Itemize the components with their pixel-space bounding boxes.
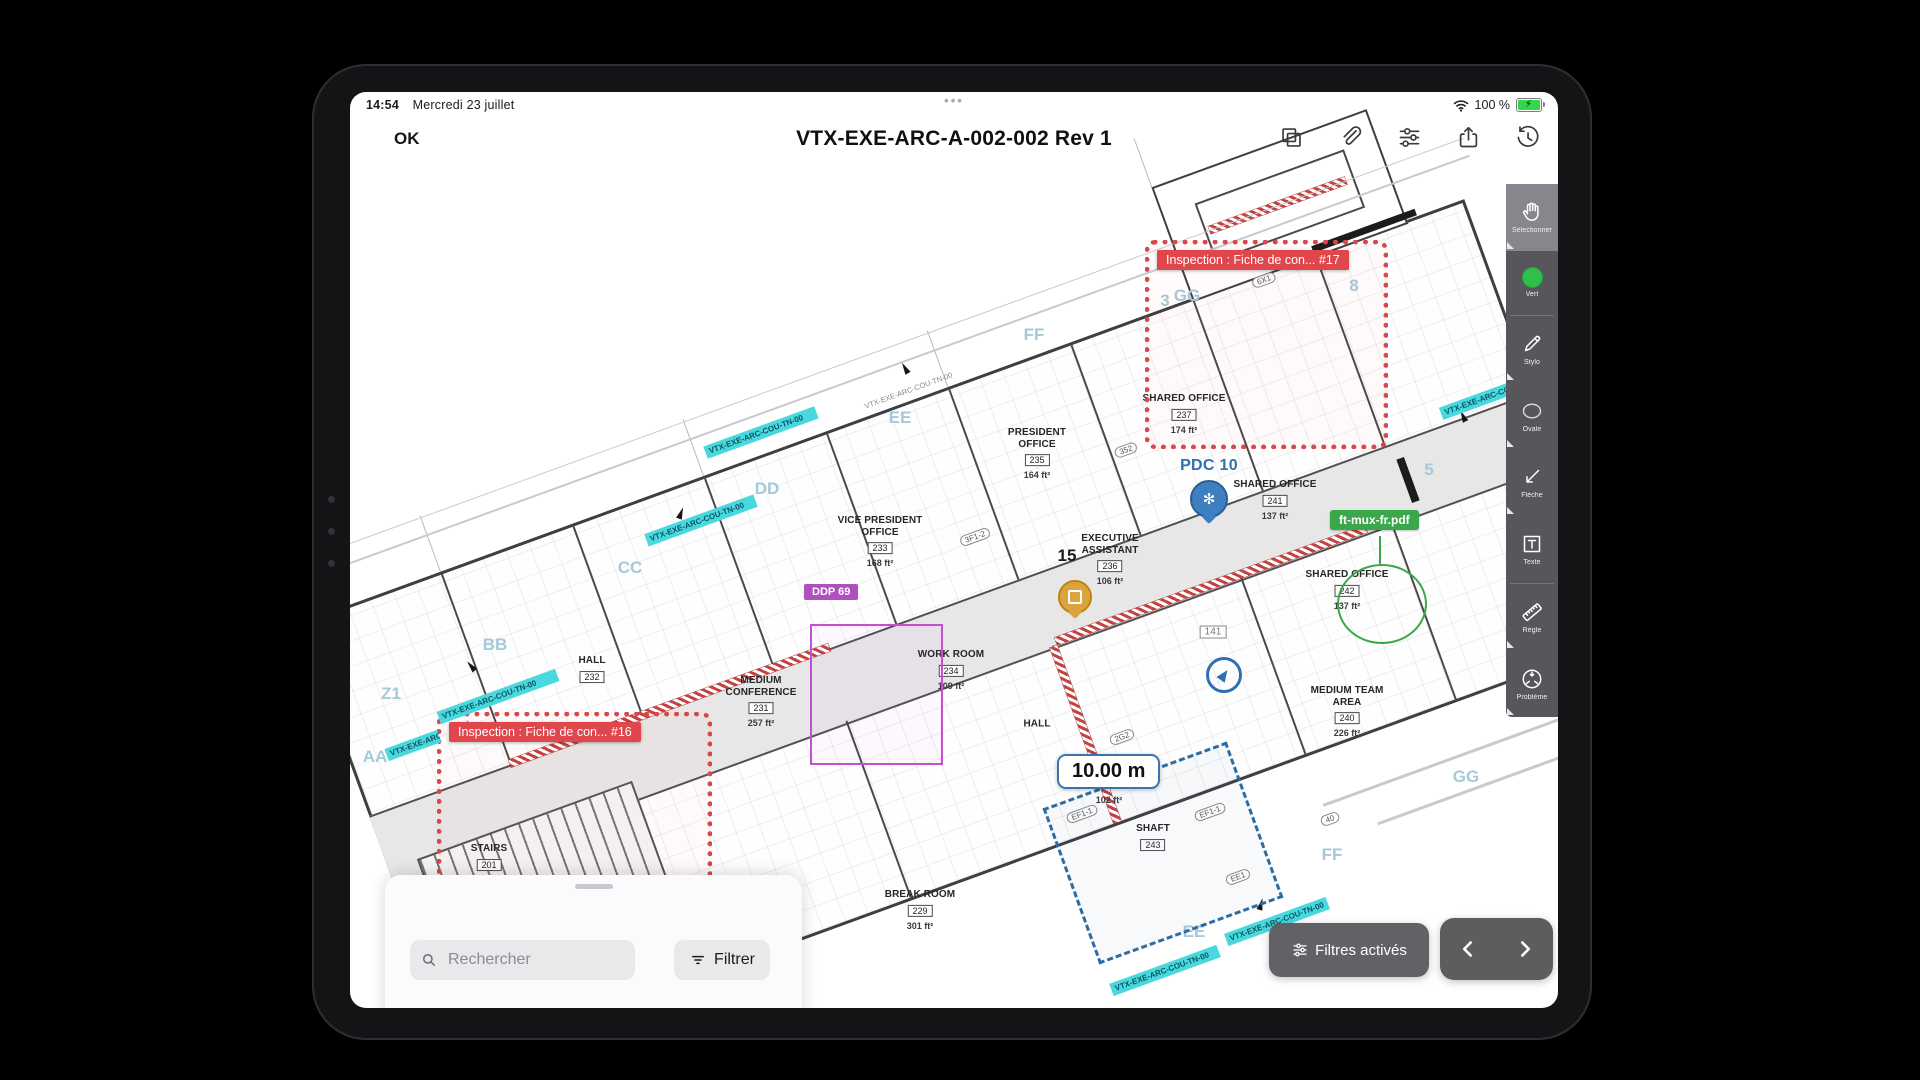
filter-settings-button[interactable] xyxy=(1394,122,1424,156)
share-icon xyxy=(1455,124,1482,151)
plan-symbol-flag xyxy=(899,361,910,374)
filter-button[interactable]: Filtrer xyxy=(674,940,770,980)
pdc-pin-icon[interactable]: ✻ xyxy=(1190,480,1228,518)
multitask-dots: ••• xyxy=(944,93,964,108)
next-sheet-button[interactable] xyxy=(1497,918,1554,980)
grid-number: 5 xyxy=(1424,460,1433,480)
grid-letter: AA xyxy=(363,747,388,767)
search-field[interactable] xyxy=(410,940,635,980)
sliders-icon xyxy=(1291,941,1309,959)
battery-icon: ⚡ xyxy=(1516,98,1542,112)
status-right: 100 % ⚡ xyxy=(1453,97,1542,113)
room-label: PRESIDENT OFFICE 235 164 ft² xyxy=(1008,427,1066,481)
status-date: Mercredi 23 juillet xyxy=(413,98,515,112)
grid-letter: GG xyxy=(1453,767,1479,787)
text-icon xyxy=(1520,532,1544,556)
document-title: VTX-EXE-ARC-A-002-002 Rev 1 xyxy=(796,127,1112,151)
inspection-17-label[interactable]: Inspection : Fiche de con... #17 xyxy=(1157,250,1349,270)
battery-percent: 100 % xyxy=(1475,98,1510,112)
grid-letter: FF xyxy=(1024,325,1045,345)
hand-icon xyxy=(1520,200,1544,224)
room-label: BREAK ROOM 229 301 ft² xyxy=(885,889,955,931)
problem-icon xyxy=(1520,667,1544,691)
grid-letter: CC xyxy=(618,558,643,578)
tool-options-corner xyxy=(1507,440,1514,447)
share-button[interactable] xyxy=(1453,122,1483,156)
attachments-button[interactable] xyxy=(1335,122,1365,156)
tool-select[interactable]: Sélectionner xyxy=(1506,184,1558,251)
wifi-icon xyxy=(1453,97,1469,113)
camera-dot xyxy=(328,496,335,503)
attachment-circle[interactable] xyxy=(1337,564,1427,644)
room-label: MEDIUM CONFERENCE 231 257 ft² xyxy=(725,675,796,729)
room-label: HALL 232 xyxy=(578,655,605,685)
search-input[interactable] xyxy=(446,950,625,970)
chevron-left-icon xyxy=(1455,936,1481,962)
position-marker-icon[interactable] xyxy=(1206,657,1242,693)
room-label: MEDIUM TEAM AREA 240 226 ft² xyxy=(1311,685,1384,739)
green-color-icon xyxy=(1522,267,1543,288)
status-bar: 14:54 Mercredi 23 juillet ••• 100 % ⚡ xyxy=(350,92,1558,118)
tool-options-corner xyxy=(1507,373,1514,380)
done-button[interactable]: OK xyxy=(388,128,426,150)
status-time: 14:54 xyxy=(366,98,399,112)
room-label: SHARED OFFICE 241 137 ft² xyxy=(1234,479,1317,521)
tool-options-corner xyxy=(1507,708,1514,715)
attached-file-label[interactable]: ft-mux-fr.pdf xyxy=(1330,510,1419,530)
filter-icon xyxy=(689,951,707,969)
screen: VTX-EXE-ARC-COU-TN-00 GG FF EE DD CC BB … xyxy=(350,92,1558,1008)
ruler-icon xyxy=(1520,600,1544,624)
nav-bar: OK VTX-EXE-ARC-A-002-002 Rev 1 xyxy=(350,116,1558,168)
issue-number: 15 xyxy=(1058,546,1077,566)
paperclip-icon xyxy=(1337,124,1364,151)
grid-letter: Z1 xyxy=(381,684,401,704)
tool-problem[interactable]: Problème xyxy=(1506,650,1558,717)
arrow-icon xyxy=(1520,465,1544,489)
room-label: HALL xyxy=(1023,718,1050,730)
room-label: VICE PRESIDENT OFFICE 233 168 ft² xyxy=(838,515,923,569)
camera-dot xyxy=(328,560,335,567)
tool-ruler[interactable]: Règle xyxy=(1506,584,1558,651)
filters-active-button[interactable]: Filtres activés xyxy=(1269,923,1429,977)
tool-options-corner xyxy=(1507,242,1514,249)
stage: VTX-EXE-ARC-COU-TN-00 GG FF EE DD CC BB … xyxy=(0,0,1920,1080)
oval-icon xyxy=(1520,399,1544,423)
sheet-pager xyxy=(1440,918,1553,980)
ref-box: 141 xyxy=(1200,626,1227,639)
tool-pen[interactable]: Stylo xyxy=(1506,316,1558,383)
grid-letter: DD xyxy=(755,479,780,499)
tool-text[interactable]: Texte xyxy=(1506,516,1558,583)
inspection-annotation-17[interactable]: Inspection : Fiche de con... #17 xyxy=(1145,240,1388,449)
grid-bubble: 40 xyxy=(1319,811,1341,828)
attachment-connector xyxy=(1379,536,1381,564)
pdc-label: PDC 10 xyxy=(1180,457,1238,475)
search-icon xyxy=(420,951,438,969)
inspection-16-label[interactable]: Inspection : Fiche de con... #16 xyxy=(449,722,641,742)
chevron-right-icon xyxy=(1512,936,1538,962)
camera-dot xyxy=(328,528,335,535)
pages-icon xyxy=(1278,124,1305,151)
sheet-drag-handle[interactable] xyxy=(575,884,613,889)
ddp-annotation-rect[interactable] xyxy=(810,624,943,765)
sliders-icon xyxy=(1396,124,1423,151)
history-icon xyxy=(1514,124,1541,151)
pages-button[interactable] xyxy=(1276,122,1306,156)
grid-letter: FF xyxy=(1322,845,1343,865)
bottom-sheet: Filtrer xyxy=(385,875,802,1008)
issue-pin-icon[interactable] xyxy=(1058,580,1092,614)
tool-arrow[interactable]: Flèche xyxy=(1506,449,1558,516)
measurement-label[interactable]: 10.00 m xyxy=(1057,754,1160,789)
tool-options-corner xyxy=(1507,507,1514,514)
plan-canvas[interactable]: VTX-EXE-ARC-COU-TN-00 GG FF EE DD CC BB … xyxy=(350,92,1558,1008)
tool-color[interactable]: Vert xyxy=(1506,251,1558,315)
previous-sheet-button[interactable] xyxy=(1440,918,1497,980)
nav-actions xyxy=(1276,122,1542,156)
history-button[interactable] xyxy=(1512,122,1542,156)
tool-options-corner xyxy=(1507,641,1514,648)
grid-letter: BB xyxy=(483,635,508,655)
tablet-frame: VTX-EXE-ARC-COU-TN-00 GG FF EE DD CC BB … xyxy=(312,64,1592,1040)
annotation-toolbar: Sélectionner Vert Stylo Ovale Flèche xyxy=(1506,184,1558,717)
tool-oval[interactable]: Ovale xyxy=(1506,382,1558,449)
room-label: EXECUTIVE ASSISTANT 236 106 ft² xyxy=(1081,533,1139,587)
grid-letter: EE xyxy=(889,408,912,428)
pen-icon xyxy=(1520,332,1544,356)
ddp-annotation-label[interactable]: DDP 69 xyxy=(804,584,858,600)
status-left: 14:54 Mercredi 23 juillet xyxy=(366,98,514,112)
